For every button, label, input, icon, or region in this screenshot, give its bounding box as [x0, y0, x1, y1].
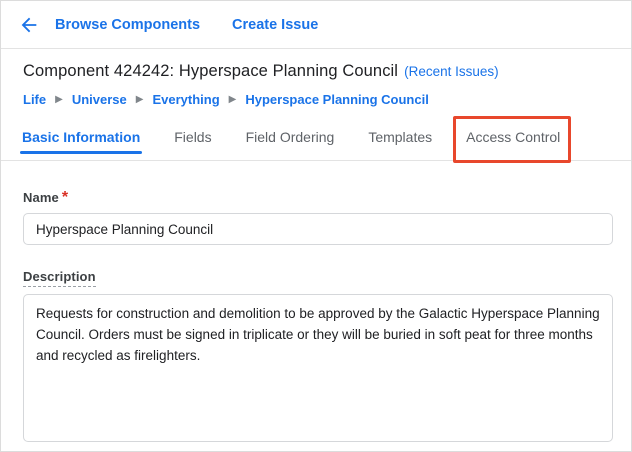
basic-information-form: Name* Description Requests for construct…	[1, 161, 631, 442]
name-input[interactable]	[23, 213, 613, 245]
breadcrumb-item-universe[interactable]: Universe	[72, 92, 127, 107]
page-header: Component 424242: Hyperspace Planning Co…	[1, 49, 631, 107]
tab-label: Access Control	[466, 129, 560, 145]
top-bar: Browse Components Create Issue	[1, 1, 631, 49]
chevron-right-icon: ▶	[136, 95, 144, 105]
name-label: Name	[23, 190, 59, 205]
required-asterisk: *	[62, 189, 68, 206]
description-field-group: Description Requests for construction an…	[23, 268, 609, 442]
description-textarea[interactable]: Requests for construction and demolition…	[23, 294, 613, 442]
tab-field-ordering[interactable]: Field Ordering	[246, 113, 335, 160]
tab-templates[interactable]: Templates	[368, 113, 432, 160]
component-edit-page: Browse Components Create Issue Component…	[0, 0, 632, 452]
breadcrumb-item-hyperspace-planning-council[interactable]: Hyperspace Planning Council	[245, 92, 429, 107]
breadcrumb-item-everything[interactable]: Everything	[152, 92, 219, 107]
tab-access-control[interactable]: Access Control	[466, 113, 560, 160]
page-title: Component 424242: Hyperspace Planning Co…	[23, 62, 398, 81]
tab-bar: Basic Information Fields Field Ordering …	[1, 113, 631, 161]
browse-components-link[interactable]: Browse Components	[55, 17, 200, 33]
chevron-right-icon: ▶	[229, 95, 237, 105]
chevron-right-icon: ▶	[55, 95, 63, 105]
recent-issues-link[interactable]: (Recent Issues)	[404, 64, 499, 79]
tab-label: Templates	[368, 129, 432, 145]
tab-label: Basic Information	[22, 129, 140, 145]
back-button[interactable]	[17, 13, 41, 37]
breadcrumb-item-life[interactable]: Life	[23, 92, 46, 107]
breadcrumb: Life ▶ Universe ▶ Everything ▶ Hyperspac…	[23, 92, 609, 107]
tab-basic-information[interactable]: Basic Information	[22, 113, 140, 160]
create-issue-link[interactable]: Create Issue	[232, 17, 318, 33]
arrow-back-icon	[18, 14, 40, 36]
tab-label: Fields	[174, 129, 211, 145]
tab-label: Field Ordering	[246, 129, 335, 145]
description-label: Description	[23, 269, 96, 287]
tab-fields[interactable]: Fields	[174, 113, 211, 160]
name-field-group: Name*	[23, 189, 609, 245]
active-tab-underline	[20, 151, 142, 155]
